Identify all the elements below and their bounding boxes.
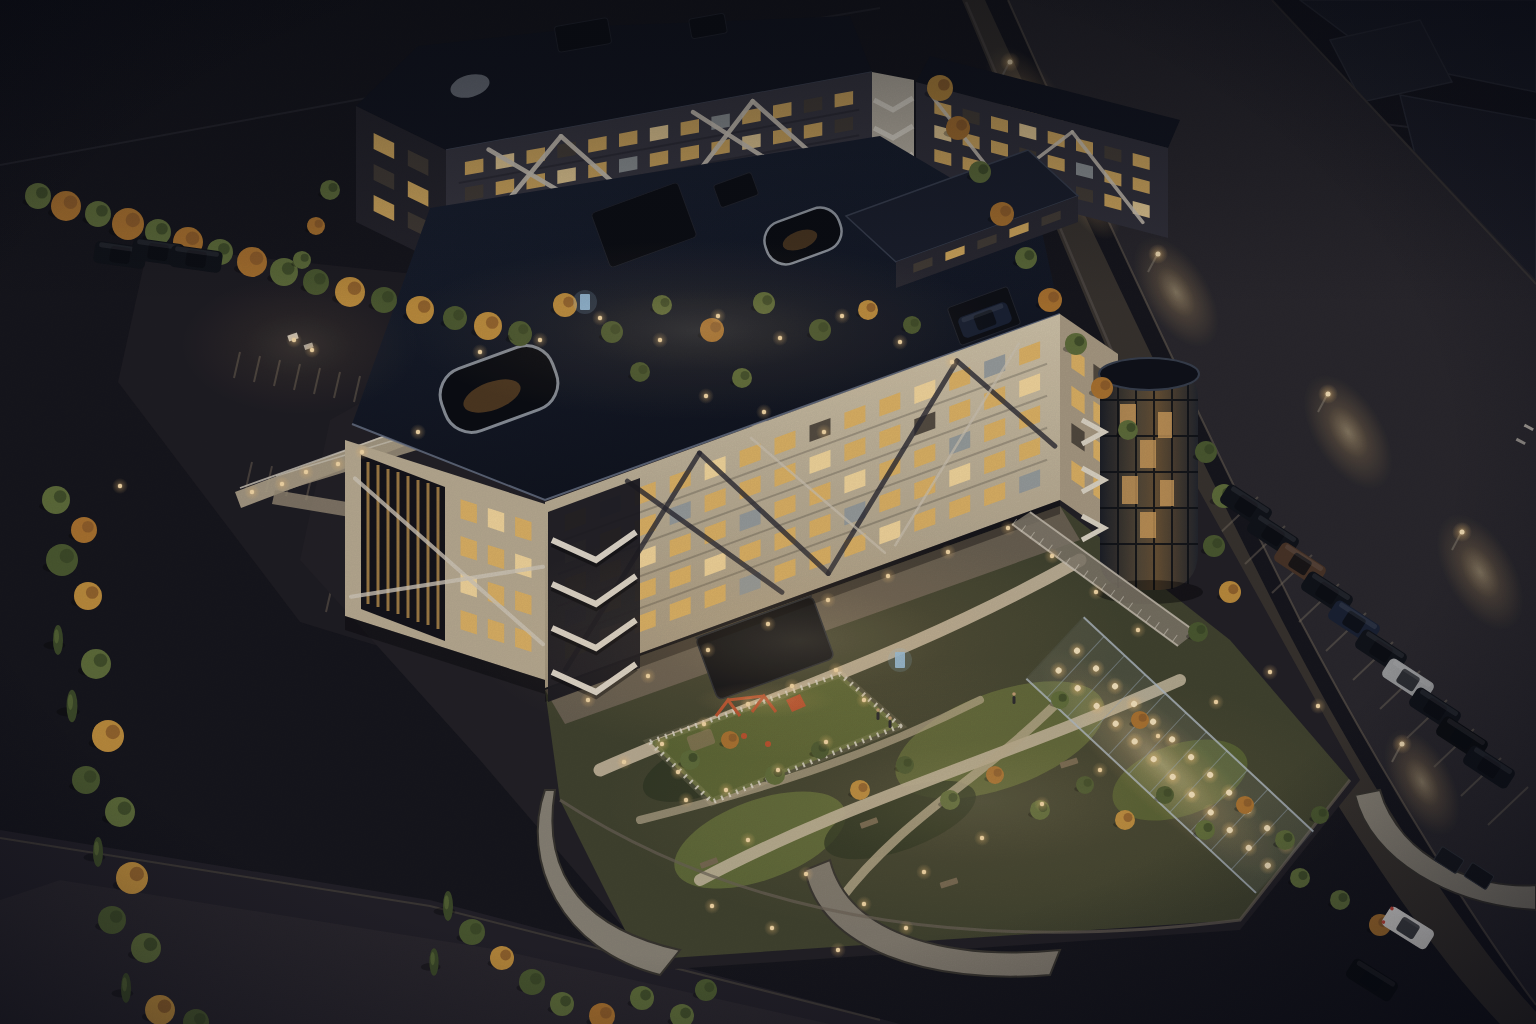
vignette bbox=[0, 0, 1536, 1024]
architectural-visualization-canvas bbox=[0, 0, 1536, 1024]
aerial-night-render bbox=[0, 0, 1536, 1024]
